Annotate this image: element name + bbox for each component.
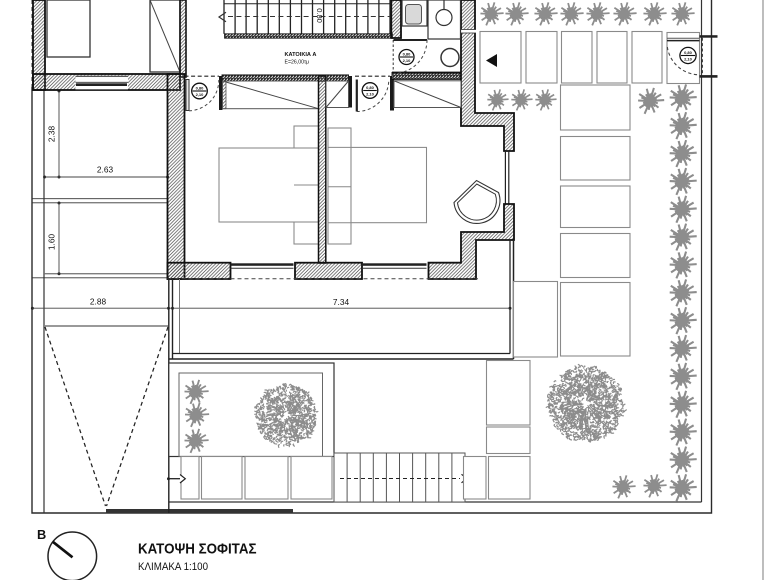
svg-text:Β: Β (37, 527, 46, 542)
svg-text:0.80: 0.80 (315, 8, 324, 23)
svg-text:2,10: 2,10 (403, 58, 412, 63)
svg-text:1.60: 1.60 (47, 234, 57, 251)
svg-text:2,10: 2,10 (196, 92, 205, 97)
svg-text:Ε=26,00τμ: Ε=26,00τμ (285, 59, 310, 65)
svg-text:ΚΑΤΟΙΚΙΑ Α: ΚΑΤΟΙΚΙΑ Α (285, 52, 317, 58)
svg-text:ΚΑΤΟΨΗ ΣΟΦΙΤΑΣ: ΚΑΤΟΨΗ ΣΟΦΙΤΑΣ (138, 541, 257, 558)
svg-text:0,80: 0,80 (684, 50, 693, 55)
svg-text:2,10: 2,10 (366, 92, 375, 97)
svg-text:2,10: 2,10 (684, 57, 693, 62)
svg-text:0,80: 0,80 (196, 86, 205, 91)
svg-text:2.63: 2.63 (97, 165, 114, 175)
svg-text:2.88: 2.88 (90, 297, 107, 307)
svg-text:2.38: 2.38 (47, 126, 57, 143)
svg-text:0,80: 0,80 (366, 85, 375, 90)
svg-text:0,80: 0,80 (403, 52, 412, 57)
svg-text:7.34: 7.34 (333, 297, 350, 307)
svg-text:ΚΛΙΜΑΚΑ 1:100: ΚΛΙΜΑΚΑ 1:100 (138, 561, 208, 573)
